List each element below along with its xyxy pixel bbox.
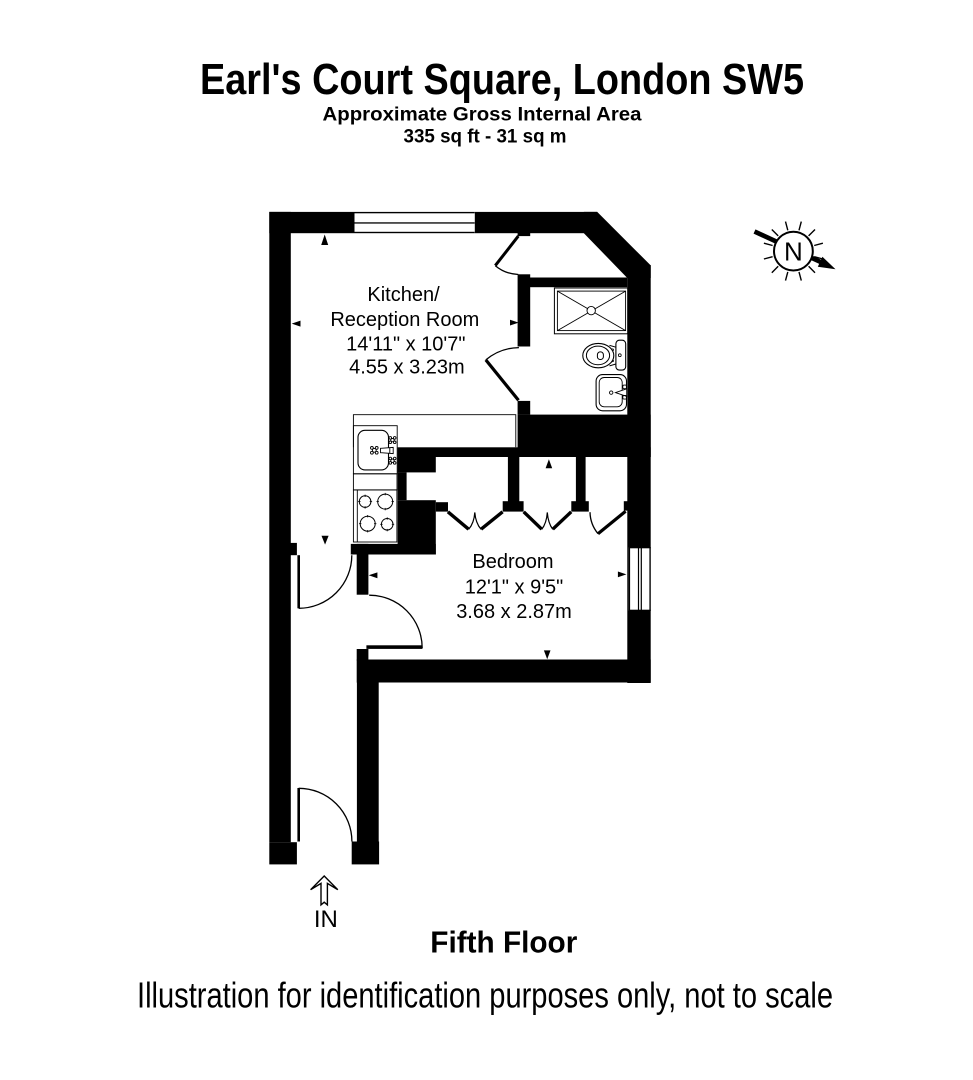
svg-text:14'11" x 10'7": 14'11" x 10'7"	[346, 333, 465, 355]
svg-text:N: N	[784, 236, 803, 266]
svg-text:3.68 x 2.87m: 3.68 x 2.87m	[456, 601, 572, 623]
svg-text:335 sq ft - 31 sq m: 335 sq ft - 31 sq m	[404, 125, 567, 147]
svg-text:Bedroom: Bedroom	[472, 551, 553, 573]
svg-text:Approximate Gross Internal Are: Approximate Gross Internal Area	[323, 104, 642, 126]
svg-text:Kitchen/: Kitchen/	[367, 284, 440, 306]
svg-text:Reception Room: Reception Room	[330, 309, 479, 331]
svg-text:Illustration for identificatio: Illustration for identification purposes…	[137, 975, 833, 1016]
svg-text:Fifth Floor: Fifth Floor	[430, 924, 577, 959]
svg-text:12'1" x 9'5": 12'1" x 9'5"	[465, 577, 564, 599]
svg-text:Earl's Court Square, London SW: Earl's Court Square, London SW5	[200, 55, 804, 104]
svg-text:4.55 x 3.23m: 4.55 x 3.23m	[349, 357, 465, 379]
svg-text:IN: IN	[314, 906, 338, 933]
